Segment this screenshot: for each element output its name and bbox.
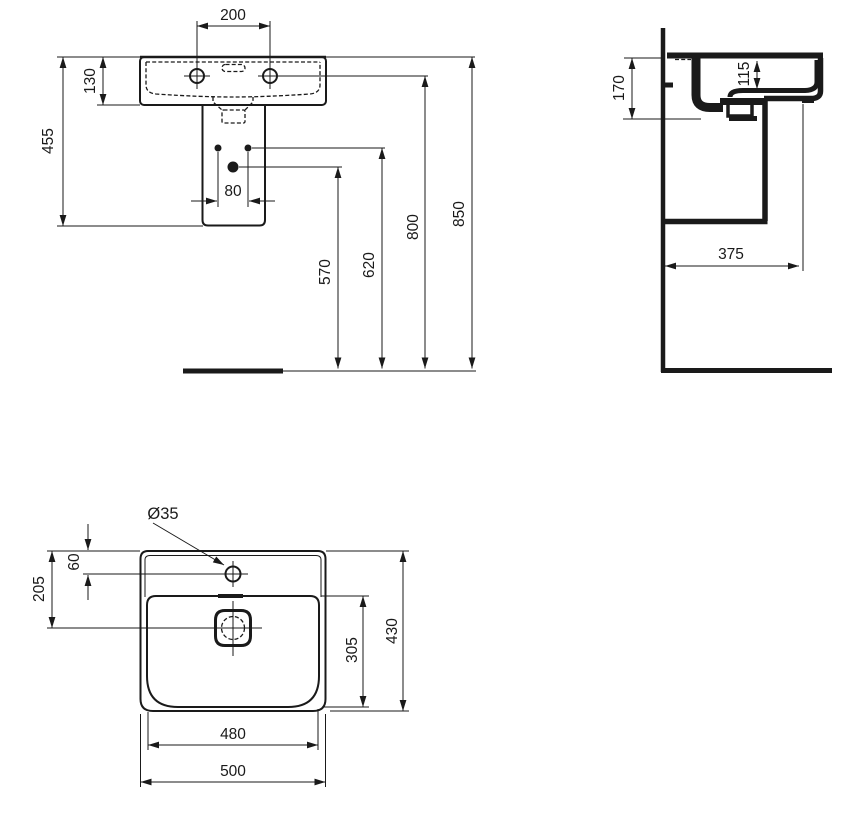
dim-fixing-holes-spacing: 80 [191,183,275,201]
dim-tap-holes-height-label: 800 [405,214,422,240]
dim-rim-height-label: 850 [451,201,468,227]
dim-fixing-holes-spacing-label: 80 [224,183,242,200]
tap-hole-leader-line [153,523,224,565]
dim-tap-hole-diameter-label: Ø35 [147,505,178,523]
washbasin-drawing: 200 130 455 80 570 620 [0,0,866,835]
dim-front-height: 170 [611,58,632,119]
dim-bowl-length: 305 [344,596,363,707]
dim-projection: 375 [665,246,799,266]
front-dimensions: 200 130 455 80 570 620 [40,7,472,369]
drain-funnel-hidden-line [213,97,253,110]
side-bowl-back-wall [696,58,723,108]
plan-extension-lines [47,551,409,787]
dim-overall-depth-label: 430 [384,618,401,644]
fixing-hole-right [245,145,252,152]
dim-fixing-holes-height-label: 620 [361,252,378,278]
dim-rim-to-underside-label: 130 [82,68,99,94]
drain-pipe-hidden-line [222,110,245,123]
dim-rim-height: 850 [451,57,472,369]
side-drain-tail [728,105,752,116]
dim-bowl-width: 480 [148,726,318,745]
dim-rim-to-tap-center: 60 [66,524,88,600]
waste-outlet-hole [228,162,239,173]
front-extension-lines [57,21,476,371]
dim-overall-width-label: 500 [220,763,246,780]
bowl-hidden-line [146,62,320,97]
front-pedestal [203,97,266,226]
front-basin [140,57,326,105]
fixing-hole-left [215,145,222,152]
dim-bowl-depth-label: 115 [736,62,753,87]
front-view: 200 130 455 80 570 620 [40,7,476,371]
plan-basin [141,551,326,711]
dim-rim-to-pedestal-bottom-label: 455 [40,128,57,154]
dim-waste-outlet-height-label: 570 [317,259,334,285]
dim-bowl-width-label: 480 [220,726,246,743]
side-view: 170 115 375 [611,28,832,372]
dim-tap-spacing: 200 [197,7,270,26]
dim-front-height-label: 170 [611,75,628,101]
dim-rim-to-drain-center-label: 205 [31,576,48,602]
dim-rim-to-underside: 130 [82,57,103,105]
dim-projection-label: 375 [718,246,744,263]
dim-tap-holes-height: 800 [405,76,425,369]
overflow-hidden-line [222,65,245,72]
dim-rim-to-drain-center: 205 [31,551,52,628]
dim-overall-depth: 430 [384,551,403,711]
technical-drawing-canvas: 200 130 455 80 570 620 [0,0,866,835]
plan-view: Ø35 60 205 305 430 480 [31,505,409,787]
dim-rim-to-pedestal-bottom: 455 [40,57,63,226]
dim-bowl-length-label: 305 [344,637,361,663]
dim-tap-spacing-label: 200 [220,7,246,24]
dim-waste-outlet-height: 570 [317,167,338,369]
dim-rim-to-tap-center-label: 60 [66,553,83,571]
dim-fixing-holes-height: 620 [361,148,382,369]
dim-bowl-depth: 115 [736,61,757,89]
dim-overall-width: 500 [141,763,326,782]
